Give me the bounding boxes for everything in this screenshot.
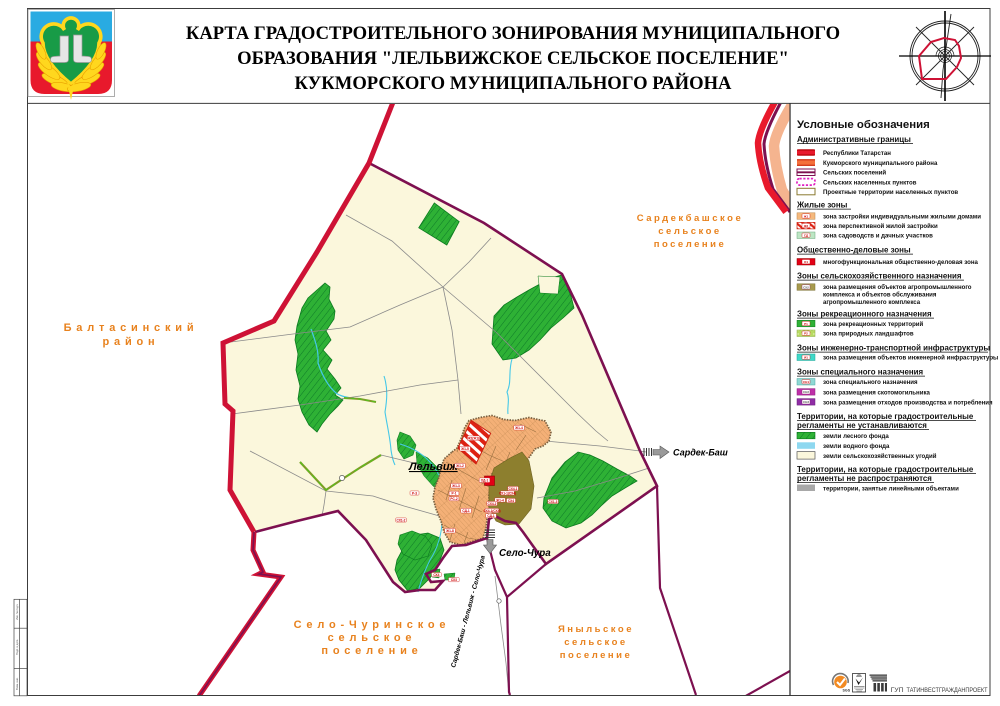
svg-text:Кукморского муниципального рай: Кукморского муниципального района xyxy=(823,160,938,167)
svg-text:СХ3: СХ3 xyxy=(451,578,457,582)
svg-text:территории, занятые линейными: территории, занятые линейными объектами xyxy=(823,485,959,492)
svg-text:ГУП: ГУП xyxy=(891,687,904,694)
svg-text:земли водного фонда: земли водного фонда xyxy=(823,443,890,450)
svg-text:ТАТИНВЕСТГРАЖДАНПРОЕКТ: ТАТИНВЕСТГРАЖДАНПРОЕКТ xyxy=(907,687,988,694)
svg-text:Зоны специального назначения: Зоны специального назначения xyxy=(797,368,923,377)
svg-text:земли лесного фонда: земли лесного фонда xyxy=(823,433,889,440)
svg-text:поселение: поселение xyxy=(321,645,422,657)
svg-text:сельское: сельское xyxy=(658,226,721,237)
svg-text:Территории, на которые градост: Территории, на которые градостроительные xyxy=(797,465,974,474)
svg-text:Взам. инв.: Взам. инв. xyxy=(15,677,19,690)
svg-text:Ж1-3: Ж1-3 xyxy=(451,484,460,488)
svg-text:Ж1-8: Ж1-8 xyxy=(445,529,454,533)
svg-text:СХ4-1(СХ4): СХ4-1(СХ4) xyxy=(483,509,500,513)
svg-text:РС-2: РС-2 xyxy=(450,497,457,501)
svg-text:Ж1-2: Ж1-2 xyxy=(455,464,464,468)
svg-text:Село-Чура: Село-Чура xyxy=(499,548,551,559)
svg-text:зона садоводств и дачных участ: зона садоводств и дачных участков xyxy=(823,233,933,240)
svg-text:СХ1-3: СХ1-3 xyxy=(549,500,558,504)
svg-text:КУКМОРСКОГО МУНИЦИПАЛЬНОГО РАЙ: КУКМОРСКОГО МУНИЦИПАЛЬНОГО РАЙОНА xyxy=(295,72,733,94)
svg-text:Сельских поселений: Сельских поселений xyxy=(823,170,886,177)
svg-text:Зоны сельскохозяйственного наз: Зоны сельскохозяйственного назначения xyxy=(797,272,962,281)
svg-text:Жилые зоны: Жилые зоны xyxy=(796,201,848,210)
svg-text:Ж1: Ж1 xyxy=(803,214,809,218)
svg-text:Ж2: Ж2 xyxy=(803,224,809,228)
svg-text:ОБРАЗОВАНИЯ "ЛЕЛЬВИЖСКОЕ СЕЛЬС: ОБРАЗОВАНИЯ "ЛЕЛЬВИЖСКОЕ СЕЛЬСКОЕ ПОСЕЛЕ… xyxy=(237,48,789,69)
svg-text:земли сельскохозяйственных уго: земли сельскохозяйственных угодий xyxy=(823,453,937,460)
svg-text:многофункциональная общественн: многофункциональная общественно-деловая … xyxy=(823,259,979,266)
svg-text:СХ1-1(СХ4): СХ1-1(СХ4) xyxy=(499,491,516,495)
svg-text:СН1: СН1 xyxy=(803,380,809,384)
svg-text:Ж2(Ж1): Ж2(Ж1) xyxy=(467,437,479,441)
svg-text:сельское: сельское xyxy=(564,637,627,648)
svg-text:КАРТА ГРАДОСТРОИТЕЛЬНОГО ЗОНИР: КАРТА ГРАДОСТРОИТЕЛЬНОГО ЗОНИРОВАНИЯ МУН… xyxy=(186,23,840,44)
svg-text:Сельских населенных пунктов: Сельских населенных пунктов xyxy=(823,179,917,186)
svg-text:СХ4-1: СХ4-1 xyxy=(509,487,518,491)
svg-text:Балтасинский: Балтасинский xyxy=(64,322,199,334)
svg-text:ОД-1: ОД-1 xyxy=(481,479,489,483)
svg-text:Сардекбашское: Сардекбашское xyxy=(637,213,743,224)
svg-text:зона размещения скотомогильник: зона размещения скотомогильника xyxy=(823,389,931,396)
svg-text:СХ4-2: СХ4-2 xyxy=(488,502,497,506)
svg-text:Р1: Р1 xyxy=(804,322,808,326)
svg-text:зона застройки индивидуальными: зона застройки индивидуальными жилыми до… xyxy=(823,214,981,221)
svg-text:Проектные территории населенны: Проектные территории населенных пунктов xyxy=(823,189,958,196)
svg-text:СН2: СН2 xyxy=(803,390,809,394)
svg-text:Ж1-5: Ж1-5 xyxy=(460,447,469,451)
svg-text:Республики Татарстан: Республики Татарстан xyxy=(823,150,891,157)
svg-text:Зоны инженерно-транспортной ин: Зоны инженерно-транспортной инфраструкту… xyxy=(797,344,990,353)
svg-text:Лельвиж: Лельвиж xyxy=(408,461,459,473)
svg-text:СН3: СН3 xyxy=(803,400,809,404)
svg-text:Административные границы: Административные границы xyxy=(797,135,911,144)
svg-text:Яныльское: Яныльское xyxy=(558,624,634,635)
svg-text:зона природных ландшафтов: зона природных ландшафтов xyxy=(823,331,914,338)
svg-text:Условные обозначения: Условные обозначения xyxy=(797,119,930,131)
svg-text:СХ4: СХ4 xyxy=(508,499,514,503)
svg-text:агропромышленного комплекса: агропромышленного комплекса xyxy=(823,299,921,306)
svg-text:зона размещения объектов инжен: зона размещения объектов инженерной инфр… xyxy=(823,355,998,362)
svg-text:СХ2: СХ2 xyxy=(803,285,809,289)
svg-text:Зоны рекреационного назначения: Зоны рекреационного назначения xyxy=(797,310,932,319)
svg-text:район: район xyxy=(103,336,160,348)
svg-text:SGS: SGS xyxy=(843,689,851,693)
svg-text:зона размещения объектов агроп: зона размещения объектов агропромышленно… xyxy=(823,284,972,291)
svg-text:Подп. и дата: Подп. и дата xyxy=(15,639,19,655)
svg-text:Р2: Р2 xyxy=(804,332,808,336)
svg-text:Р-3: Р-3 xyxy=(412,491,417,495)
svg-text:комплекса и объектов обслужива: комплекса и объектов обслуживания xyxy=(823,292,937,299)
svg-text:СХ1-2: СХ1-2 xyxy=(397,518,406,522)
svg-text:зона рекреационных территорий: зона рекреационных территорий xyxy=(823,321,924,328)
svg-text:зона специального назначения: зона специального назначения xyxy=(823,379,918,386)
svg-text:СД-1: СД-1 xyxy=(487,514,495,518)
svg-text:Инв. № подл.: Инв. № подл. xyxy=(15,604,19,620)
svg-text:зона размещения отходов произв: зона размещения отходов производства и п… xyxy=(823,399,993,406)
svg-text:регламенты не распространяются: регламенты не распространяются xyxy=(797,474,932,483)
svg-text:Территории, на которые градост: Территории, на которые градостроительные xyxy=(797,412,974,421)
svg-text:И1: И1 xyxy=(804,356,808,360)
svg-text:СД-1: СД-1 xyxy=(462,509,470,513)
svg-text:поселение: поселение xyxy=(654,239,727,250)
svg-text:О1: О1 xyxy=(804,260,808,264)
svg-text:Сардек-Баш: Сардек-Баш xyxy=(673,448,728,458)
svg-text:Ж1-4: Ж1-4 xyxy=(514,426,523,430)
svg-text:регламенты не устанавливаются: регламенты не устанавливаются xyxy=(797,421,927,430)
svg-text:Общественно-деловые зоны: Общественно-деловые зоны xyxy=(797,246,911,255)
svg-text:поселение: поселение xyxy=(560,650,633,661)
svg-text:Село-Чуринское: Село-Чуринское xyxy=(294,619,451,631)
svg-text:зона перспективной жилой застр: зона перспективной жилой застройки xyxy=(823,223,938,230)
svg-text:Р-1: Р-1 xyxy=(452,492,457,496)
svg-text:сельское: сельское xyxy=(328,632,417,644)
svg-text:СХ4: СХ4 xyxy=(433,573,439,577)
